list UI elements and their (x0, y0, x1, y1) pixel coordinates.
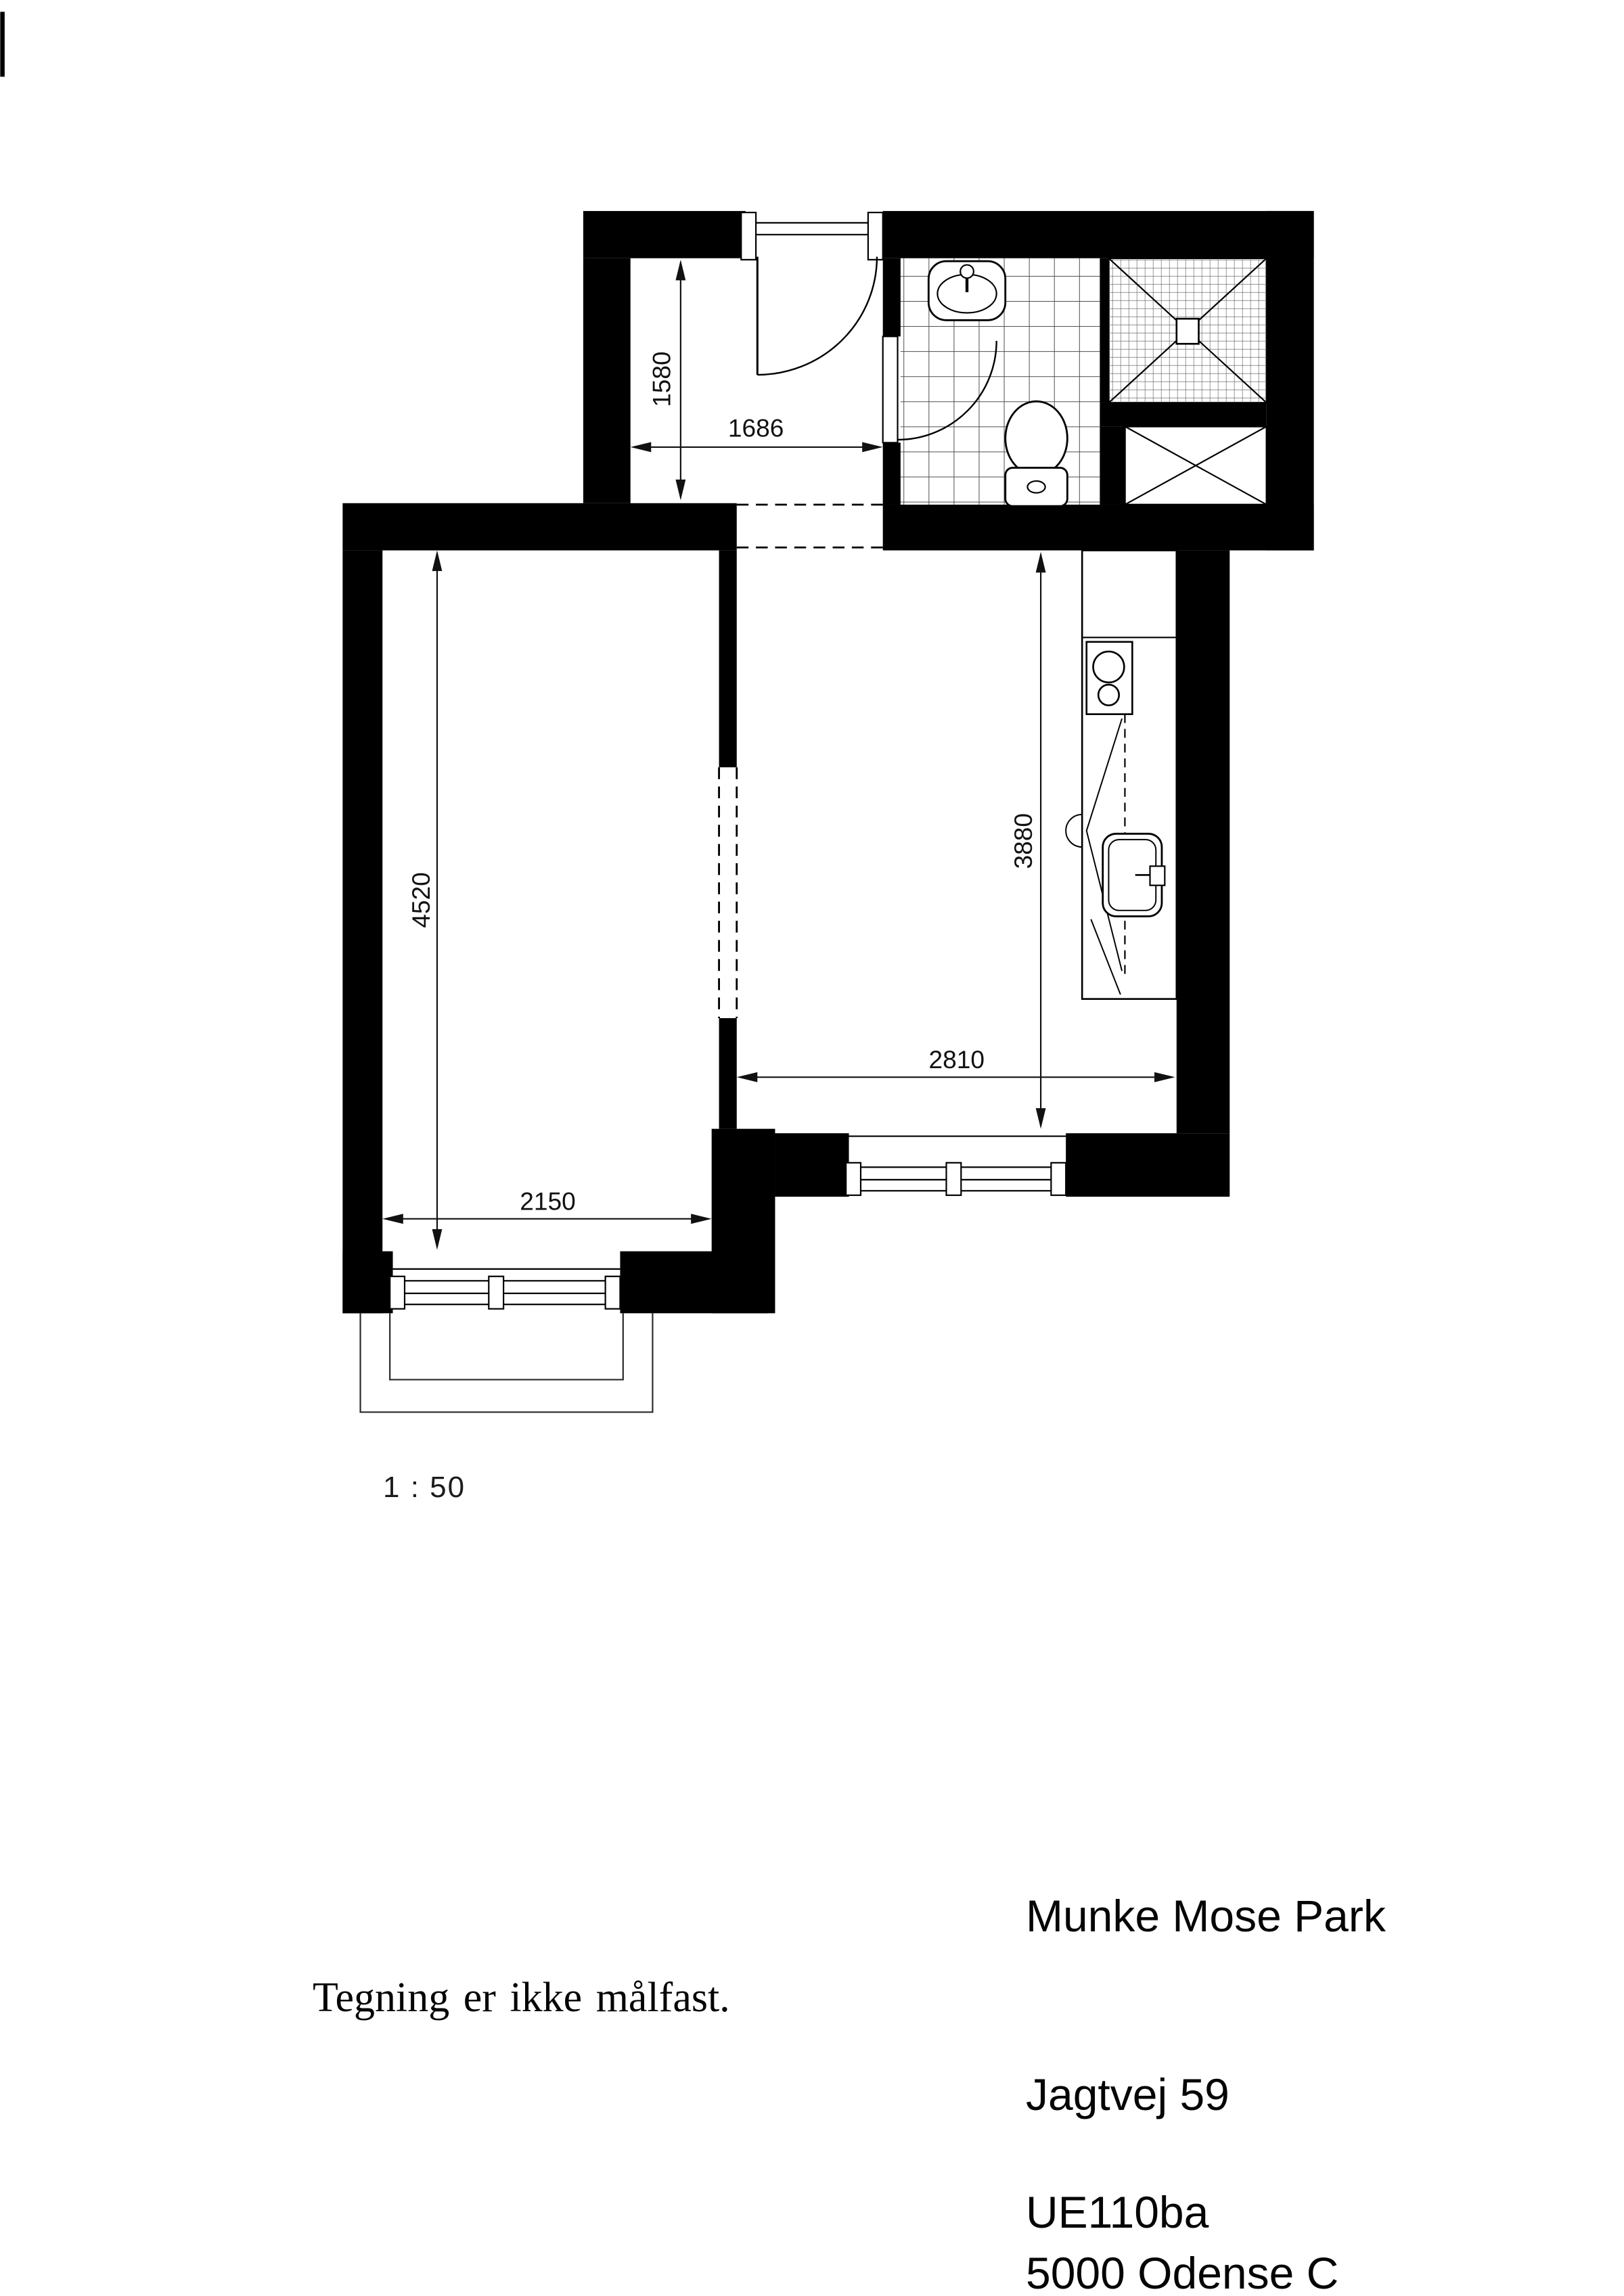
unit-info: UE110ba Bruttoareal: 44,2 m² Nettoareal:… (1026, 2062, 1331, 2296)
wall-main-bottom-right (1066, 1133, 1230, 1197)
bathroom-sink-icon (928, 261, 1005, 320)
wall-hall-left (583, 258, 631, 503)
toilet-icon (1006, 401, 1068, 506)
address-line-1: Munke Mose Park (1026, 1886, 1386, 1946)
page-edge-artifact (0, 12, 5, 76)
wall-left-room-left (342, 551, 382, 1314)
wall-right-upper (1267, 211, 1314, 551)
disclaimer-text: Tegning er ikke målfast. (313, 1974, 730, 2022)
dim-label-3880: 3880 (1009, 813, 1037, 869)
wall-hall-bath-partition-lower (883, 442, 901, 505)
shower-drain-icon (1177, 319, 1199, 344)
unit-id: UE110ba (1026, 2182, 1331, 2243)
wall-main-bottom-left (775, 1133, 849, 1197)
wall-bath-shower-divider (1100, 258, 1108, 403)
wall-left-room-bottom-right (620, 1252, 767, 1314)
window-main-room (846, 1136, 1066, 1195)
kitchen-counter (1066, 551, 1177, 999)
dim-label-1580: 1580 (648, 351, 676, 407)
wall-top-left (583, 211, 746, 258)
shower-icon (1108, 258, 1266, 403)
wall-left-room-right-upper (719, 551, 737, 768)
balcony-outline (361, 1313, 653, 1412)
entry-door-icon (741, 212, 882, 375)
scale-label: 1 : 50 (383, 1471, 466, 1505)
wall-main-room-right (1177, 551, 1230, 1134)
duct-shaft-icon (1125, 426, 1266, 505)
dim-label-2810: 2810 (929, 1045, 985, 1074)
dim-label-4520: 4520 (407, 872, 435, 927)
dim-left-room-width: 2150 (382, 1187, 711, 1224)
window-left-room (390, 1269, 620, 1309)
wall-under-shower (1100, 403, 1266, 426)
dim-left-room-depth: 4520 (407, 551, 442, 1250)
wall-left-room-right-stub (719, 1018, 737, 1129)
wall-left-room-bottom-left (342, 1252, 392, 1314)
wall-hall-bath-partition-upper (883, 258, 901, 337)
open-boundaries (719, 505, 883, 1018)
dim-main-room-width: 2810 (737, 1045, 1175, 1082)
wall-top-right (883, 211, 1314, 258)
dim-main-room-depth: 3880 (1009, 552, 1046, 1129)
dim-label-1686: 1686 (728, 414, 784, 442)
wall-left-room-top (342, 503, 736, 551)
wall-shaft-stub (1100, 426, 1125, 505)
dim-label-2150: 2150 (520, 1187, 575, 1216)
dim-hall-width: 1686 (631, 414, 883, 453)
wall-bath-bottom (883, 505, 1314, 551)
kitchen-sink-icon (1103, 833, 1165, 916)
floor-plan-page: 1580 1686 4520 3880 2810 (0, 0, 1624, 2296)
dim-hall-depth: 1580 (648, 260, 686, 501)
